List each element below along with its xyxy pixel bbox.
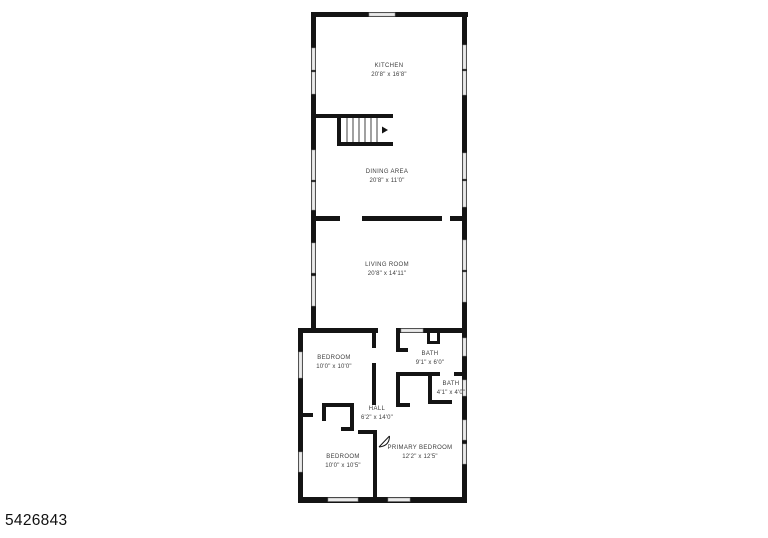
room-dims: 10'0" x 10'0" — [294, 364, 374, 370]
room-label-bedroom-top: BEDROOM 10'0" x 10'0" — [294, 355, 374, 370]
listing-number: 5426843 — [5, 512, 67, 530]
room-dims: 20'8" x 16'8" — [329, 72, 449, 78]
room-dims: 20'8" x 11'0" — [327, 178, 447, 184]
room-name: BEDROOM — [294, 355, 374, 361]
room-label-living-room: LIVING ROOM 20'8" x 14'11" — [327, 262, 447, 277]
walls-path — [298, 12, 468, 503]
room-label-bath-small: BATH 4'1" x 4'0" — [416, 381, 486, 396]
stair-treads — [347, 118, 377, 146]
room-dims: 9'1" x 6'0" — [395, 360, 465, 366]
room-name: PRIMARY BEDROOM — [365, 445, 475, 451]
room-label-kitchen: KITCHEN 20'8" x 16'8" — [329, 63, 449, 78]
room-name: KITCHEN — [329, 63, 449, 69]
room-dims: 4'1" x 4'0" — [416, 390, 486, 396]
floor-plan-page: KITCHEN 20'8" x 16'8" DINING AREA 20'8" … — [0, 0, 768, 538]
room-label-dining-area: DINING AREA 20'8" x 11'0" — [327, 169, 447, 184]
room-label-primary-bedroom: PRIMARY BEDROOM 12'2" x 12'5" — [365, 445, 475, 460]
room-dims: 20'8" x 14'11" — [327, 271, 447, 277]
room-name: BATH — [395, 351, 465, 357]
room-dims: 10'0" x 10'5" — [303, 463, 383, 469]
stair-arrow-icon — [382, 127, 388, 134]
room-name: BATH — [416, 381, 486, 387]
room-name: HALL — [342, 406, 412, 412]
room-label-bath-main: BATH 9'1" x 6'0" — [395, 351, 465, 366]
room-name: LIVING ROOM — [327, 262, 447, 268]
windows-path — [299, 13, 466, 502]
room-dims: 6'2" x 14'0" — [342, 415, 412, 421]
room-name: DINING AREA — [327, 169, 447, 175]
room-dims: 12'2" x 12'5" — [365, 454, 475, 460]
room-label-hall: HALL 6'2" x 14'0" — [342, 406, 412, 421]
